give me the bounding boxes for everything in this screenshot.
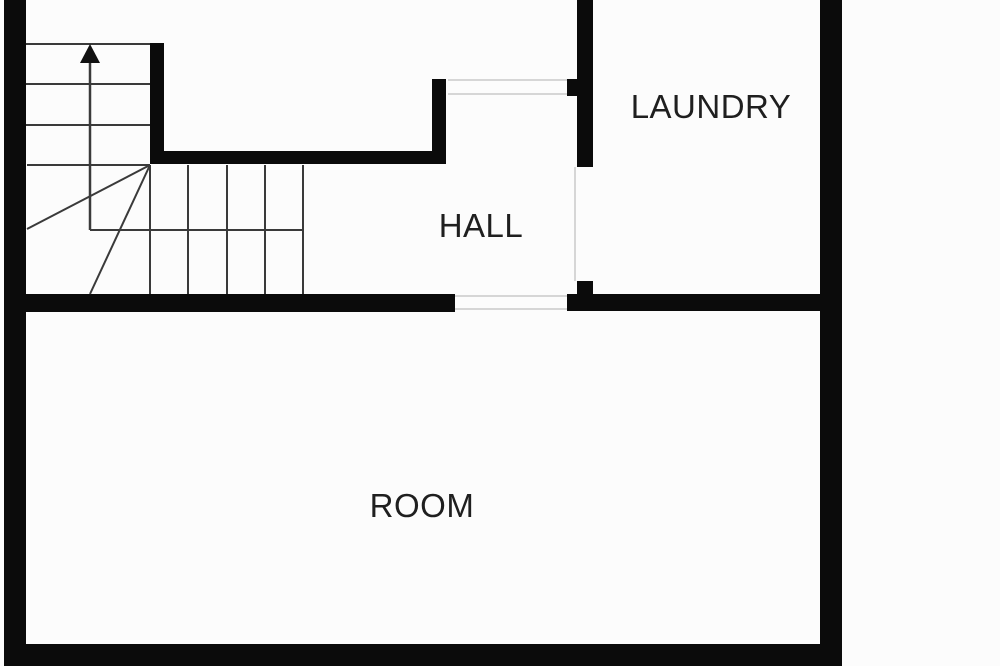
hall-room-label: HALL [439,207,524,245]
stairs-up-arrow-icon [80,44,100,230]
stair-and-threshold-lines [0,0,1000,666]
stair-break-line [27,165,150,229]
laundry-room-label: LAUNDRY [631,88,792,126]
up-arrow-head [80,44,100,63]
room-room-label: ROOM [370,487,475,525]
floor-plan: LAUNDRY HALL ROOM [0,0,1000,666]
door-threshold-lines [448,80,575,309]
stair-treads [26,44,303,294]
